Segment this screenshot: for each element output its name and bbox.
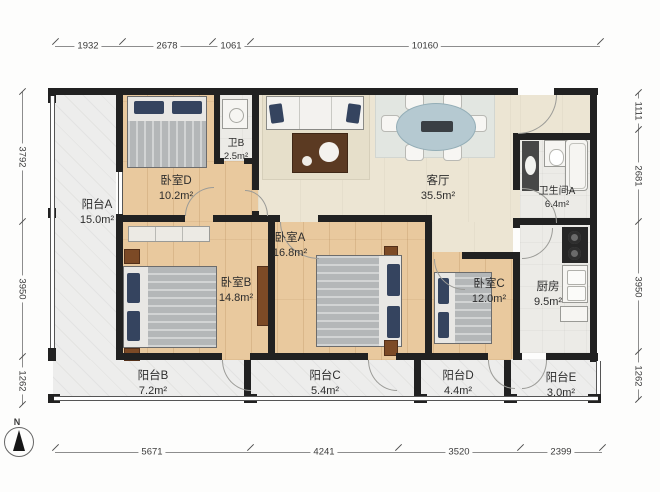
pillow: [172, 101, 202, 114]
wall-segment: [116, 353, 222, 360]
toilet: [544, 140, 566, 167]
dim-line-right: [638, 93, 639, 400]
dim-value: 3950: [633, 273, 644, 300]
room-label-balcony-c: 阳台C 5.4m²: [309, 369, 340, 398]
wardrobe: [128, 226, 210, 242]
dim-value: 2681: [633, 162, 644, 189]
wall-segment: [513, 133, 520, 190]
dim-value: 2399: [547, 447, 574, 458]
dim-tick: [19, 401, 26, 408]
dim-value: 2678: [153, 41, 180, 52]
bathroom-vanity: [522, 141, 539, 191]
wall-segment: [214, 95, 220, 163]
pillow: [127, 273, 140, 303]
corridor-floor: [432, 222, 513, 252]
room-area: 14.8m²: [219, 291, 253, 305]
dim-value: 4241: [310, 447, 337, 458]
room-name: 卧室C: [473, 277, 504, 292]
dim-value: 1262: [633, 362, 644, 389]
dim-value: 10160: [409, 41, 441, 52]
floorplan-page: 阳台A 15.0m² 卧室D 10.2m² 卫B 2.5m² 客厅 35.5m²…: [0, 0, 660, 492]
sink-basin: [567, 270, 586, 285]
dim-value: 5671: [138, 447, 165, 458]
room-label-balcony-a: 阳台A 15.0m²: [80, 198, 114, 227]
dim-value: 3520: [445, 447, 472, 458]
table-plate: [302, 156, 312, 166]
blanket: [128, 121, 206, 167]
wall-segment: [252, 95, 259, 190]
room-name: 厨房: [537, 280, 560, 295]
compass-needle: [13, 430, 25, 451]
wall-segment: [318, 215, 432, 222]
pillow: [438, 312, 449, 338]
room-area: 15.0m²: [80, 213, 114, 227]
dim-tick: [395, 444, 402, 451]
room-name: 卫生间A: [539, 186, 576, 199]
balcony-a-floor: [53, 95, 116, 360]
room-label-bedroom-a: 卧室A 16.8m²: [273, 231, 307, 260]
dim-tick: [247, 444, 254, 451]
washer-door: [229, 108, 244, 123]
washing-machine: [222, 99, 248, 129]
room-area: 16.8m²: [273, 246, 307, 260]
kitchen-sink: [562, 265, 588, 303]
nightstand: [124, 249, 140, 264]
room-label-balcony-d: 阳台D 4.4m²: [442, 369, 473, 398]
wall-segment: [214, 158, 224, 164]
bathtub-inner: [569, 143, 586, 189]
room-label-living-room: 客厅 35.5m²: [421, 174, 455, 203]
wall-segment: [123, 215, 185, 222]
sofa-seam: [299, 97, 300, 129]
wall-segment: [252, 215, 280, 222]
sofa: [266, 96, 364, 130]
dim-value: 1262: [17, 367, 28, 394]
bed-double: [127, 96, 207, 168]
room-area: 2.5m²: [224, 151, 248, 163]
dim-value: 3792: [17, 143, 28, 170]
coffee-table: [292, 133, 348, 173]
dim-line-left: [22, 92, 23, 405]
stove: [562, 227, 588, 263]
blanket: [317, 256, 379, 346]
toilet-bowl: [549, 149, 564, 166]
dim-tick: [52, 38, 59, 45]
dim-value: 1061: [217, 41, 244, 52]
wall-segment: [514, 353, 522, 360]
wall-segment: [462, 252, 520, 259]
dim-value: 3950: [17, 275, 28, 302]
wall-segment: [250, 353, 368, 360]
room-name: 卧室A: [275, 231, 306, 246]
window: [50, 96, 55, 348]
room-area: 5.4m²: [311, 384, 339, 398]
sink-basin: [567, 286, 586, 301]
room-label-bedroom-b: 卧室B 14.8m²: [219, 276, 253, 305]
room-name: 卧室D: [160, 174, 191, 189]
room-name: 阳台E: [546, 371, 577, 386]
room-area: 10.2m²: [159, 189, 193, 203]
bed-double: [123, 266, 217, 348]
table-centerpiece: [421, 121, 453, 132]
window: [596, 361, 601, 394]
burner: [568, 247, 581, 260]
wall-segment: [396, 353, 488, 360]
room-name: 阳台C: [309, 369, 340, 384]
room-name: 卧室B: [221, 276, 252, 291]
pillow: [387, 264, 400, 296]
window: [118, 172, 123, 214]
room-area: 3.0m²: [547, 386, 575, 400]
dim-tick: [119, 38, 126, 45]
pillow: [387, 306, 400, 338]
room-name: 阳台D: [442, 369, 473, 384]
room-name: 卫B: [228, 138, 245, 151]
sofa-pillow: [346, 103, 362, 124]
room-label-balcony-e: 阳台E 3.0m²: [546, 371, 577, 400]
dim-value: 1111: [633, 98, 644, 123]
room-name: 客厅: [427, 174, 450, 189]
room-label-kitchen: 厨房 9.5m²: [534, 280, 562, 309]
room-area: 6.4m²: [545, 199, 569, 211]
kitchen-cabinet: [560, 306, 588, 322]
blanket: [148, 267, 216, 347]
dim-tick: [52, 444, 59, 451]
room-label-bedroom-c: 卧室C 12.0m²: [472, 277, 506, 306]
room-area: 9.5m²: [534, 295, 562, 309]
dim-value: 1932: [74, 41, 101, 52]
wall-segment: [425, 215, 432, 360]
compass-north-label: N: [11, 417, 24, 427]
room-area: 35.5m²: [421, 189, 455, 203]
dim-line-top: [55, 46, 600, 47]
room-label-bedroom-d: 卧室D 10.2m²: [159, 174, 193, 203]
sofa-pillow: [269, 103, 285, 124]
pillow: [127, 311, 140, 341]
room-name: 阳台B: [138, 369, 169, 384]
burner: [568, 231, 581, 244]
wall-segment: [48, 348, 56, 361]
sink-basin: [525, 156, 536, 175]
room-area: 12.0m²: [472, 292, 506, 306]
dining-table: [396, 103, 476, 151]
bathtub: [565, 139, 588, 191]
pillow: [134, 101, 164, 114]
room-label-balcony-b: 阳台B 7.2m²: [138, 369, 169, 398]
dim-tick: [599, 444, 606, 451]
dim-tick: [597, 38, 604, 45]
bed-double: [316, 255, 402, 347]
room-label-bath-b: 卫B 2.5m²: [224, 138, 248, 163]
dim-tick: [209, 38, 216, 45]
room-label-bathroom-a: 卫生间A 6.4m²: [539, 186, 576, 211]
compass-icon: [4, 427, 34, 457]
table-plate: [319, 142, 339, 162]
wall-segment: [520, 133, 590, 140]
wall-segment: [513, 256, 520, 360]
dim-tick: [635, 396, 642, 403]
dim-tick: [247, 38, 254, 45]
wall-segment: [116, 88, 123, 172]
wall-segment: [116, 214, 123, 360]
room-area: 4.4m²: [444, 384, 472, 398]
room-area: 7.2m²: [139, 384, 167, 398]
dim-tick: [517, 444, 524, 451]
sofa-seam: [331, 97, 332, 129]
wall-segment: [414, 360, 421, 398]
room-name: 阳台A: [82, 198, 113, 213]
